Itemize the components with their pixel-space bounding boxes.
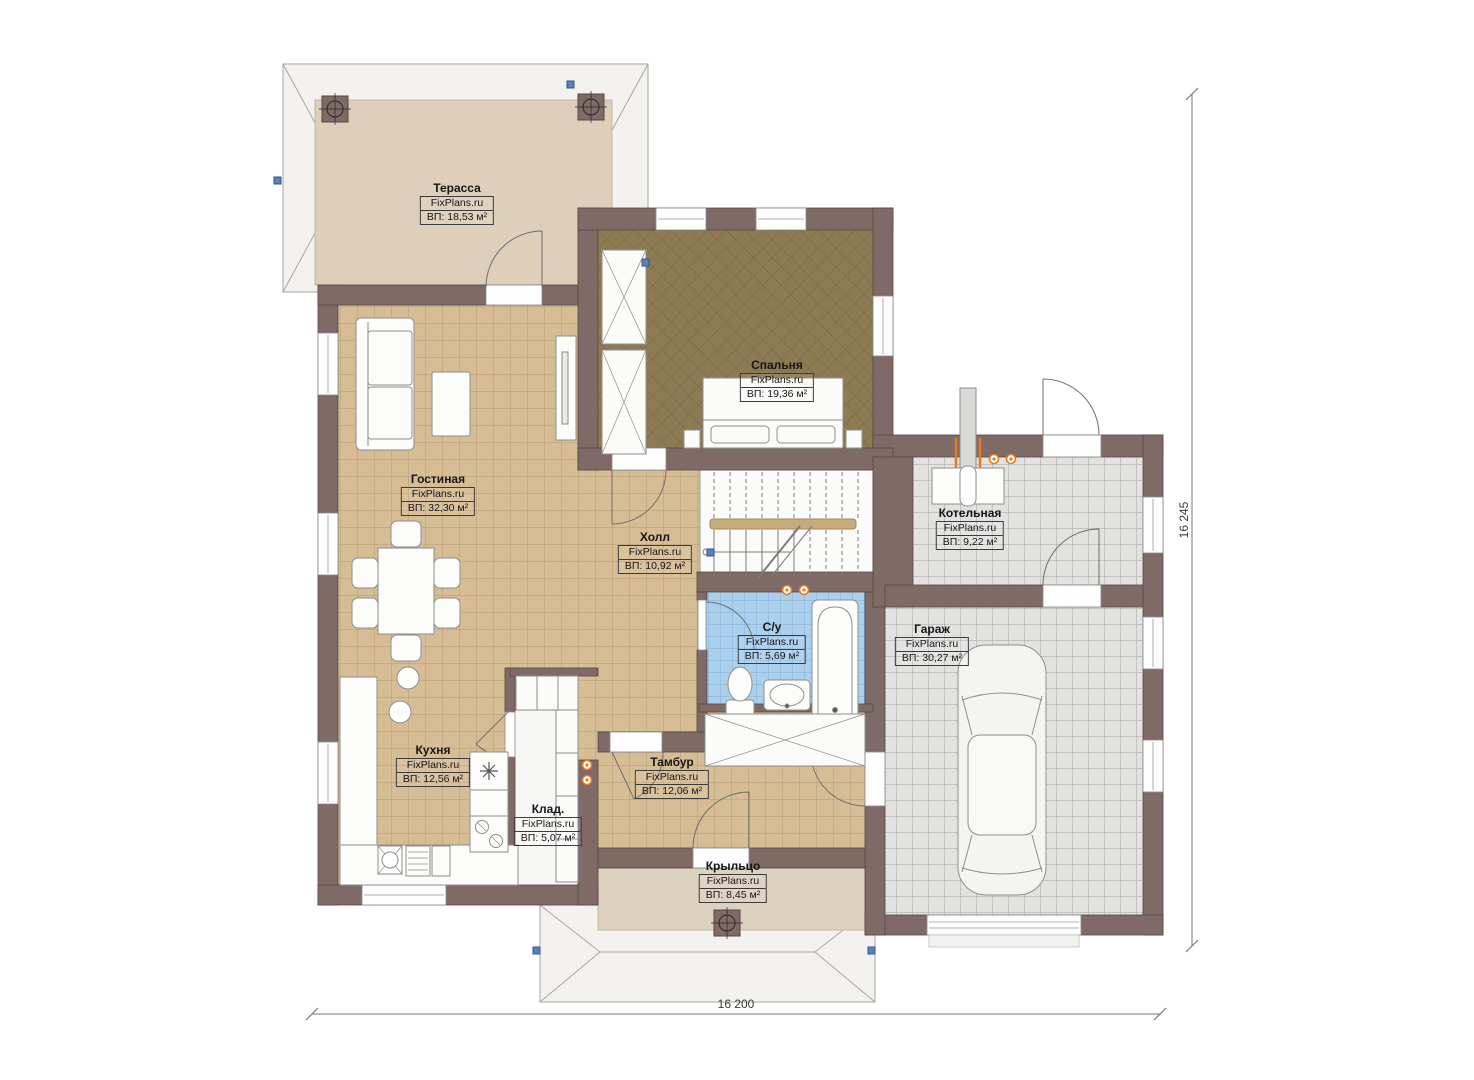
room-name: Гараж [895, 622, 969, 636]
room-info-box: FixPlans.ru ВП: 5,07 м² [514, 817, 582, 846]
column-symbol [711, 907, 743, 939]
window [756, 208, 806, 230]
power-outlet-icon [800, 586, 809, 595]
tv-console [556, 336, 576, 440]
window [318, 742, 338, 804]
selection-handle [642, 259, 649, 266]
window [873, 296, 893, 356]
selection-handle [707, 549, 714, 556]
door-opening [1043, 585, 1101, 607]
selection-handle [868, 947, 875, 954]
room-info-box: FixPlans.ru ВП: 12,06 м² [635, 770, 709, 799]
room-name: Крыльцо [699, 859, 767, 873]
wardrobe [602, 350, 646, 454]
garage-apron [929, 935, 1079, 947]
room-name: Котельная [936, 506, 1004, 520]
selection-handle [274, 177, 281, 184]
room-label-bedroom: Спальня FixPlans.ru ВП: 19,36 м² [740, 358, 814, 402]
area-text: ВП: 12,06 м² [636, 785, 708, 798]
door-opening [865, 752, 885, 806]
floor-plan-canvas: Терасса FixPlans.ru ВП: 18,53 м² Спальня… [0, 0, 1474, 1080]
area-text: ВП: 5,07 м² [515, 832, 581, 845]
area-text: ВП: 12,56 м² [397, 773, 469, 786]
floor-plan-drawing [0, 0, 1474, 1080]
brand-text: FixPlans.ru [397, 759, 469, 773]
room-label-boiler-room: Котельная FixPlans.ru ВП: 9,22 м² [936, 506, 1004, 550]
column-symbol [319, 93, 351, 125]
kitchen-counter-right [470, 752, 508, 852]
window [362, 885, 446, 905]
kitchen-unit [432, 846, 450, 876]
room-info-box: FixPlans.ru ВП: 8,45 м² [699, 874, 767, 903]
area-text: ВП: 18,53 м² [421, 211, 493, 224]
room-name: Тамбур [635, 755, 709, 769]
area-text: ВП: 5,69 м² [739, 650, 805, 663]
brand-text: FixPlans.ru [739, 636, 805, 650]
room-info-box: FixPlans.ru ВП: 5,69 м² [738, 635, 806, 664]
room-label-hall: Холл FixPlans.ru ВП: 10,92 м² [618, 530, 692, 574]
brand-text: FixPlans.ru [402, 488, 474, 502]
brand-text: FixPlans.ru [421, 197, 493, 211]
brand-text: FixPlans.ru [636, 771, 708, 785]
coffee-table [432, 372, 470, 436]
dining-table [378, 548, 434, 634]
dimension-height-label: 16 245 [1177, 502, 1191, 539]
room-info-box: FixPlans.ru ВП: 12,56 м² [396, 758, 470, 787]
room-info-box: FixPlans.ru ВП: 10,92 м² [618, 545, 692, 574]
room-name: Терасса [420, 181, 494, 195]
brand-text: FixPlans.ru [700, 875, 766, 889]
room-label-kitchen: Кухня FixPlans.ru ВП: 12,56 м² [396, 743, 470, 787]
window [1143, 740, 1163, 792]
room-label-porch: Крыльцо FixPlans.ru ВП: 8,45 м² [699, 859, 767, 903]
door-leaf [698, 600, 706, 650]
window [1143, 617, 1163, 669]
column-symbol [575, 91, 607, 123]
brand-text: FixPlans.ru [515, 818, 581, 832]
door-opening [486, 285, 542, 305]
power-outlet-icon [990, 455, 999, 464]
room-info-box: FixPlans.ru ВП: 9,22 м² [936, 521, 1004, 550]
window [318, 513, 338, 575]
kitchen-sink [378, 846, 402, 874]
room-label-storage: Клад. FixPlans.ru ВП: 5,07 м² [514, 802, 582, 846]
area-text: ВП: 10,92 м² [619, 560, 691, 573]
power-outlet-icon [783, 586, 792, 595]
stair-handrail [710, 519, 856, 529]
garage-door [927, 915, 1081, 935]
room-label-terrace: Терасса FixPlans.ru ВП: 18,53 м² [420, 181, 494, 225]
nightstand [846, 430, 862, 448]
area-text: ВП: 30,27 м² [896, 652, 968, 665]
kitchen-stove [406, 846, 430, 876]
room-name: Гостиная [401, 472, 475, 486]
room-info-box: FixPlans.ru ВП: 30,27 м² [895, 637, 969, 666]
brand-text: FixPlans.ru [741, 374, 813, 388]
power-outlet-icon [1007, 455, 1016, 464]
toilet [726, 667, 754, 716]
brand-text: FixPlans.ru [619, 546, 691, 560]
area-text: ВП: 32,30 м² [402, 502, 474, 515]
room-label-living-room: Гостиная FixPlans.ru ВП: 32,30 м² [401, 472, 475, 516]
vestibule-closet [705, 714, 865, 766]
room-name: Спальня [740, 358, 814, 372]
room-info-box: FixPlans.ru ВП: 32,30 м² [401, 487, 475, 516]
hall-opening-floor [578, 470, 598, 760]
nightstand [684, 430, 700, 448]
window [1143, 497, 1163, 553]
area-text: ВП: 19,36 м² [741, 388, 813, 401]
room-label-vestibule: Тамбур FixPlans.ru ВП: 12,06 м² [635, 755, 709, 799]
sofa [356, 318, 414, 450]
room-info-box: FixPlans.ru ВП: 19,36 м² [740, 373, 814, 402]
area-text: ВП: 8,45 м² [700, 889, 766, 902]
wardrobe [602, 250, 646, 344]
door-opening [505, 712, 515, 757]
selection-handle [567, 81, 574, 88]
room-label-garage: Гараж FixPlans.ru ВП: 30,27 м² [895, 622, 969, 666]
chimney-pipe [960, 388, 976, 472]
room-label-bathroom: С/у FixPlans.ru ВП: 5,69 м² [738, 620, 806, 664]
area-text: ВП: 9,22 м² [937, 536, 1003, 549]
brand-text: FixPlans.ru [896, 638, 968, 652]
door-opening [1043, 435, 1101, 457]
room-name: Кухня [396, 743, 470, 757]
power-outlet-icon [583, 761, 592, 770]
room-name: Клад. [514, 802, 582, 816]
room-name: С/у [738, 620, 806, 634]
window [656, 208, 706, 230]
car-top-view [958, 645, 1046, 895]
boiler-pipe-u [960, 466, 976, 506]
power-outlet-icon [583, 776, 592, 785]
room-info-box: FixPlans.ru ВП: 18,53 м² [420, 196, 494, 225]
dimension-width-label: 16 200 [718, 997, 755, 1011]
window [318, 333, 338, 395]
door-opening [610, 732, 662, 752]
selection-handle [533, 947, 540, 954]
stool [397, 667, 419, 689]
room-name: Холл [618, 530, 692, 544]
kitchen-counter-left [340, 677, 377, 847]
brand-text: FixPlans.ru [937, 522, 1003, 536]
stool [389, 701, 411, 723]
washbasin [764, 680, 810, 710]
bathtub [812, 600, 858, 728]
